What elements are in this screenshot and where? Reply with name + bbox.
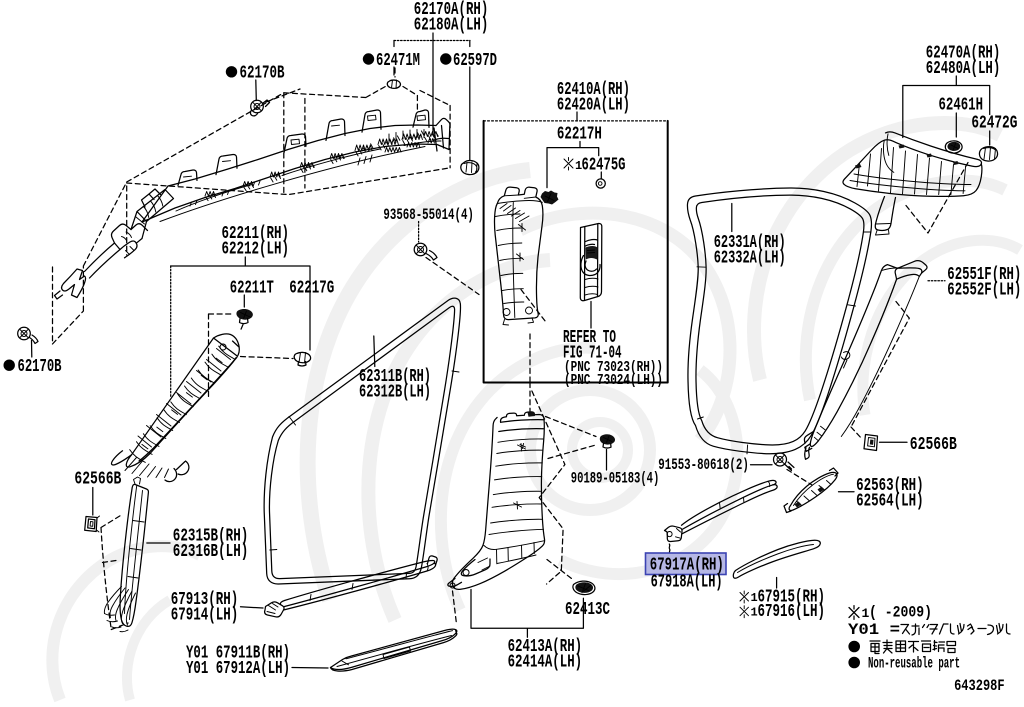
svg-text:93568-55014(4): 93568-55014(4) [383,206,474,224]
svg-text:62564(LH): 62564(LH) [856,491,924,511]
svg-text:62471M: 62471M [376,51,420,71]
svg-text:62566B: 62566B [910,435,957,455]
svg-text:643298F: 643298F [954,677,1005,695]
svg-text:( -2009): ( -2009) [869,604,932,622]
svg-text:91553-80618(2): 91553-80618(2) [658,456,749,474]
svg-text:62413C: 62413C [565,600,610,620]
svg-text:62312B(LH): 62312B(LH) [359,382,431,402]
svg-text:67918A(LH): 67918A(LH) [651,573,723,593]
svg-text:62217G: 62217G [289,278,334,298]
svg-text:62461H: 62461H [939,95,984,115]
svg-text:62211T: 62211T [230,278,274,298]
svg-text:62597D: 62597D [453,51,497,71]
svg-text:62170B: 62170B [18,357,62,377]
svg-text:62552F(LH): 62552F(LH) [947,281,1021,301]
svg-text:62475G: 62475G [582,155,626,175]
svg-text:62332A(LH): 62332A(LH) [714,248,786,268]
svg-text:62414A(LH): 62414A(LH) [508,653,582,673]
svg-text:67914(LH): 67914(LH) [171,606,239,626]
svg-text:90189-05183(4): 90189-05183(4) [571,470,660,488]
svg-text:Y01 67912A(LH): Y01 67912A(LH) [186,659,290,679]
svg-text:62217H: 62217H [557,125,602,145]
svg-text:62316B(LH): 62316B(LH) [173,542,249,562]
svg-text:62420A(LH): 62420A(LH) [557,95,630,115]
svg-text:62566B: 62566B [74,469,121,489]
svg-text:67916(LH): 67916(LH) [758,602,826,622]
svg-text:62212(LH): 62212(LH) [222,240,290,260]
svg-text:62170B: 62170B [240,64,285,84]
svg-text:62180A(LH): 62180A(LH) [414,16,489,36]
svg-text:62472G: 62472G [971,114,1017,134]
svg-text:62480A(LH): 62480A(LH) [926,59,1001,79]
svg-text:Non-reusable part: Non-reusable part [868,655,960,673]
svg-text:Y01 =: Y01 = [848,621,900,639]
svg-text:(PNC 73024(LH)): (PNC 73024(LH)) [564,372,663,389]
